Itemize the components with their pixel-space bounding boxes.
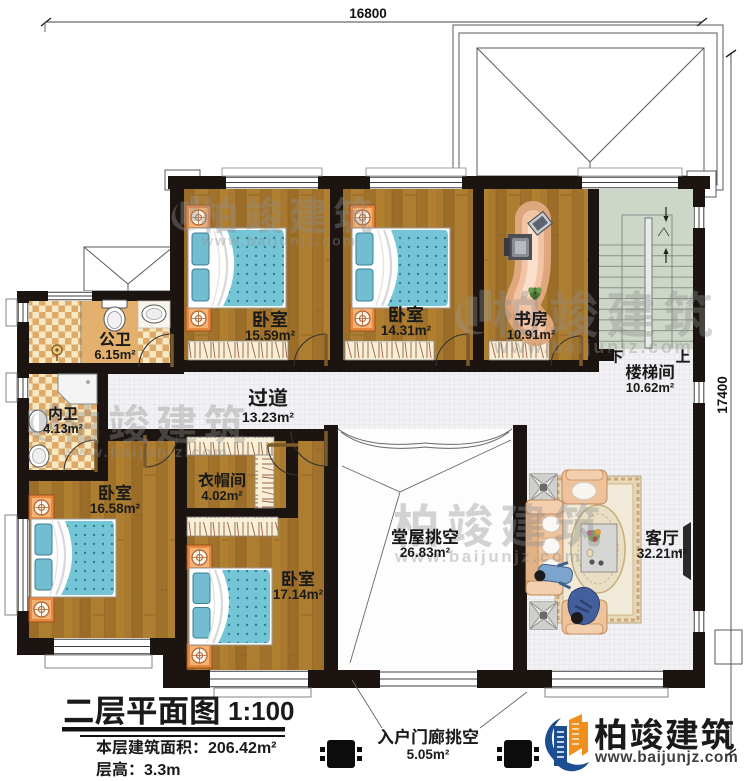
svg-text:32.21m²: 32.21m² [637,546,688,561]
svg-text:15.59m²: 15.59m² [245,328,296,343]
svg-text:206.42m²: 206.42m² [208,740,277,757]
svg-text:10.62m²: 10.62m² [626,380,675,395]
svg-text:www.baijunjz.com: www.baijunjz.com [61,444,229,461]
svg-text:17.14m²: 17.14m² [273,587,324,602]
svg-text:4.13m²: 4.13m² [43,422,83,436]
svg-text:17400: 17400 [715,376,730,414]
svg-text:www.baijunjz.com: www.baijunjz.com [201,233,357,249]
svg-text:16800: 16800 [349,6,387,21]
svg-text:www.baijunjz.com: www.baijunjz.com [594,749,738,766]
svg-text:4.02m²: 4.02m² [201,488,243,503]
svg-text:26.83m²: 26.83m² [400,545,451,560]
svg-text:1:100: 1:100 [228,696,295,726]
svg-text:5.05m²: 5.05m² [407,747,450,762]
svg-text:14.31m²: 14.31m² [381,323,432,338]
svg-text:6.15m²: 6.15m² [94,347,136,362]
svg-text:13.23m²: 13.23m² [242,409,294,425]
svg-text:3.3m: 3.3m [144,762,180,779]
svg-text:10.91m²: 10.91m² [507,327,556,342]
svg-text:16.58m²: 16.58m² [90,501,141,516]
